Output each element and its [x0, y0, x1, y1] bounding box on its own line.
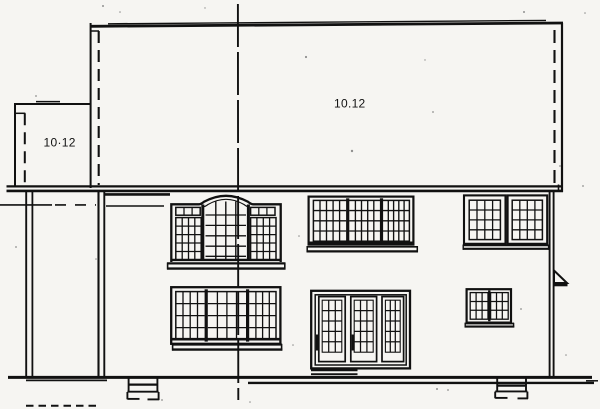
svg-text:10.12: 10.12: [334, 97, 366, 111]
svg-text:10·12: 10·12: [44, 136, 76, 150]
